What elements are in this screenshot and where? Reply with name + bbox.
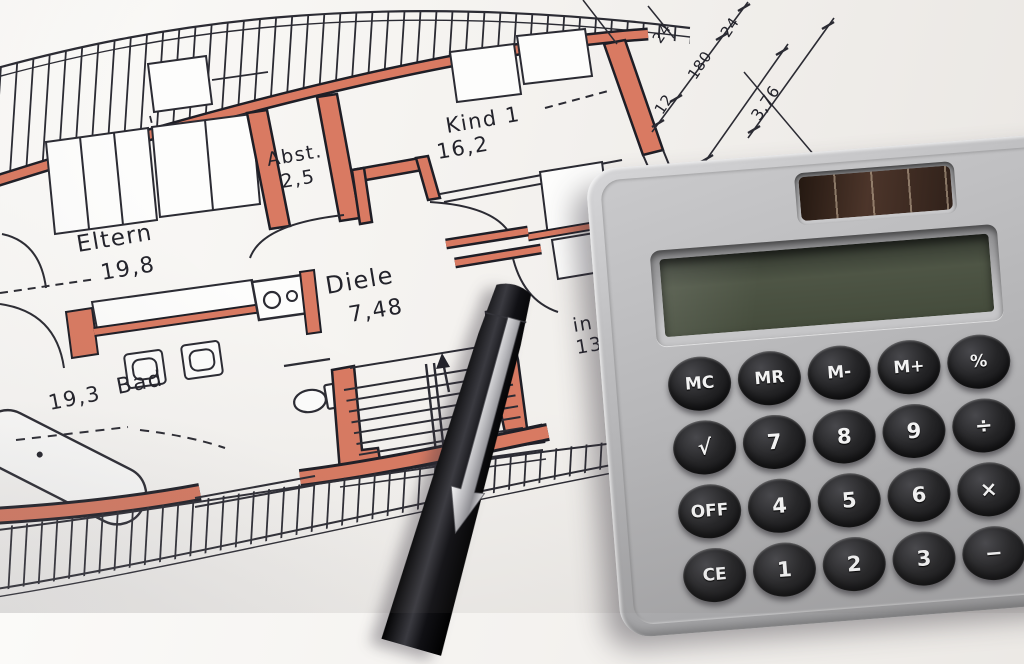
calc-key-mplus[interactable]: M+	[875, 338, 942, 397]
calc-key-mc[interactable]: MC	[666, 354, 733, 413]
diele-top-red-wall	[352, 156, 440, 224]
room-label-partial: in	[571, 312, 595, 337]
room-area-bad: 19,3	[46, 381, 102, 415]
calc-key-8[interactable]: 8	[811, 407, 878, 466]
calc-key-percent[interactable]: %	[945, 332, 1012, 391]
calculator-keypad: MC MR M- M+ % √ 7 8 9 ÷ OFF 4 5 6 × CE 1…	[585, 130, 1024, 639]
calc-key-mr[interactable]: MR	[736, 349, 803, 408]
calc-key-4[interactable]: 4	[746, 476, 813, 535]
dim-total-376: 3,76	[747, 82, 784, 124]
calc-key-minus[interactable]: −	[960, 524, 1024, 583]
calc-key-off[interactable]: OFF	[676, 482, 743, 541]
calc-key-9[interactable]: 9	[880, 402, 947, 461]
calc-key-1[interactable]: 1	[751, 540, 818, 599]
calc-key-5[interactable]: 5	[816, 471, 883, 530]
calc-key-3[interactable]: 3	[891, 529, 958, 588]
room-area-eltern: 19,8	[99, 252, 157, 286]
calc-key-ce[interactable]: CE	[681, 546, 748, 605]
calc-key-7[interactable]: 7	[741, 413, 808, 472]
room-area-abst: 2,5	[279, 166, 317, 193]
dim-12: 12	[651, 91, 677, 118]
calc-key-6[interactable]: 6	[885, 465, 952, 524]
calc-key-multiply[interactable]: ×	[955, 460, 1022, 519]
dimension-labels: 24 24 180 12 3,76	[649, 14, 784, 124]
calc-key-2[interactable]: 2	[821, 535, 888, 594]
calculator: MC MR M- M+ % √ 7 8 9 ÷ OFF 4 5 6 × CE 1…	[585, 130, 1024, 639]
room-area-diele: 7,48	[347, 294, 405, 328]
room-label-bad: Bad	[114, 366, 165, 400]
room-label-diele: Diele	[323, 261, 396, 300]
photo-scene: Eltern 19,8 Abst. 2,5 Kind 1 16,2 Diele …	[0, 0, 1024, 613]
diele-right-red-walls	[446, 231, 541, 263]
room-area-kind1: 16,2	[435, 132, 491, 164]
calc-key-mminus[interactable]: M-	[806, 343, 873, 402]
eltern-closets	[46, 114, 260, 234]
calc-key-divide[interactable]: ÷	[950, 396, 1017, 455]
calc-key-sqrt[interactable]: √	[671, 418, 738, 477]
